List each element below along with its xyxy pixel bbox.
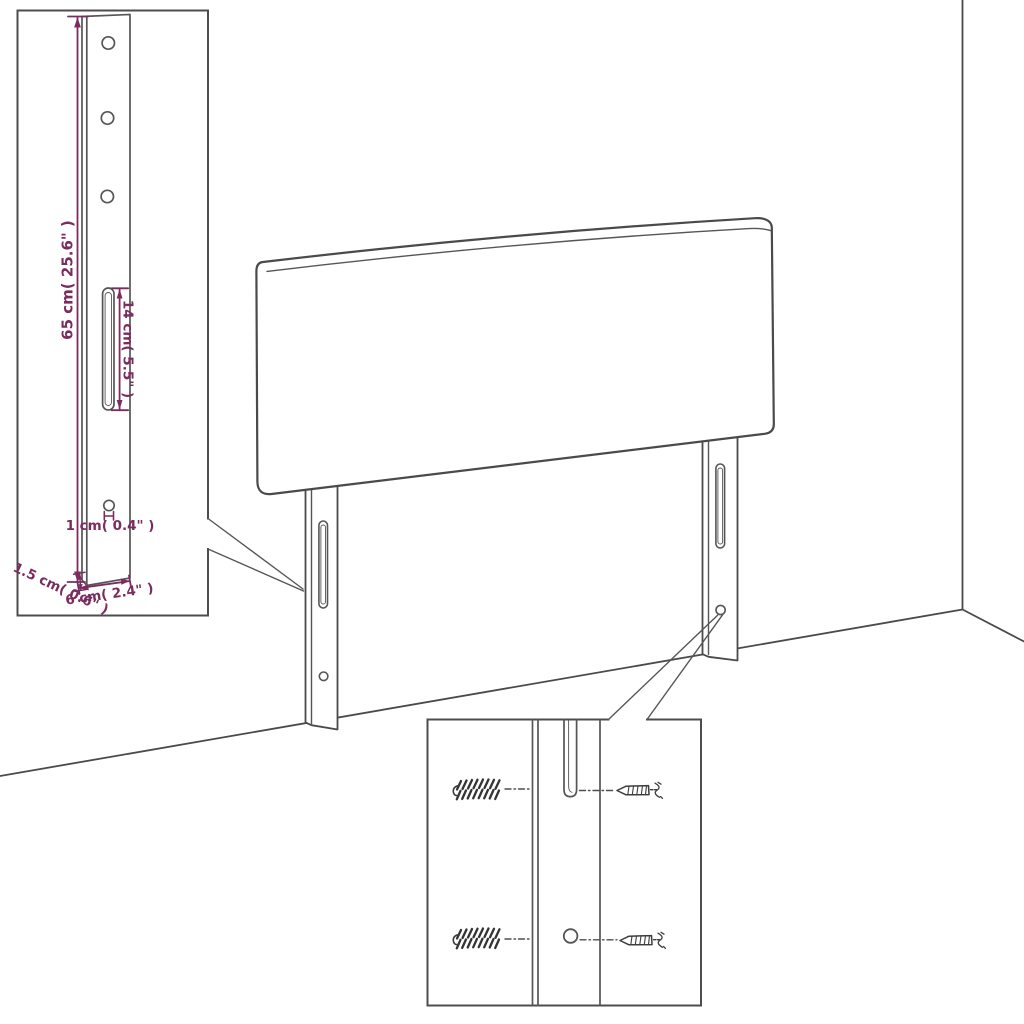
label-leg-height: 65 cm( 25.6" ) bbox=[59, 220, 77, 340]
product-diagram-canvas: 65 cm( 25.6" ) 14 cm( 5.5" ) 1 cm( 0.4" … bbox=[0, 0, 1024, 1024]
headboard-dimension-diagram: 65 cm( 25.6" ) 14 cm( 5.5" ) 1 cm( 0.4" … bbox=[0, 0, 1024, 1024]
leg-slot bbox=[103, 288, 114, 410]
label-slot-length: 14 cm( 5.5" ) bbox=[120, 300, 136, 398]
leg-slot-inner bbox=[105, 293, 111, 406]
leg-screw-hole-1 bbox=[102, 37, 114, 49]
wall-plug-icon bbox=[453, 780, 499, 800]
headboard-leg-left bbox=[306, 469, 338, 730]
screw-icon bbox=[617, 782, 663, 798]
dimension-leg-height: 65 cm( 25.6" ) bbox=[59, 17, 89, 583]
leg-screw-hole-2 bbox=[101, 112, 113, 124]
headboard-assembly bbox=[256, 218, 773, 729]
leg-callout-pointer-lines bbox=[208, 519, 304, 592]
headboard-panel bbox=[256, 218, 773, 494]
floor-line-left bbox=[0, 610, 963, 777]
strip-round-hole bbox=[564, 929, 578, 943]
dimension-slot-length: 14 cm( 5.5" ) bbox=[112, 288, 136, 410]
wall-plug-icon bbox=[453, 929, 499, 949]
screw-detail-callout bbox=[428, 615, 723, 1006]
strip-slot-bottom bbox=[564, 720, 577, 797]
label-hole-diameter: 1 cm( 0.4" ) bbox=[66, 518, 155, 534]
dimension-hole-diameter: 1 cm( 0.4" ) bbox=[66, 512, 155, 535]
floor-line-right bbox=[963, 610, 1024, 642]
screw-icon bbox=[620, 932, 666, 948]
leg-lower-hole bbox=[104, 500, 114, 510]
leg-screw-hole-3 bbox=[101, 190, 113, 202]
enlarged-leg-strip bbox=[533, 720, 601, 1006]
